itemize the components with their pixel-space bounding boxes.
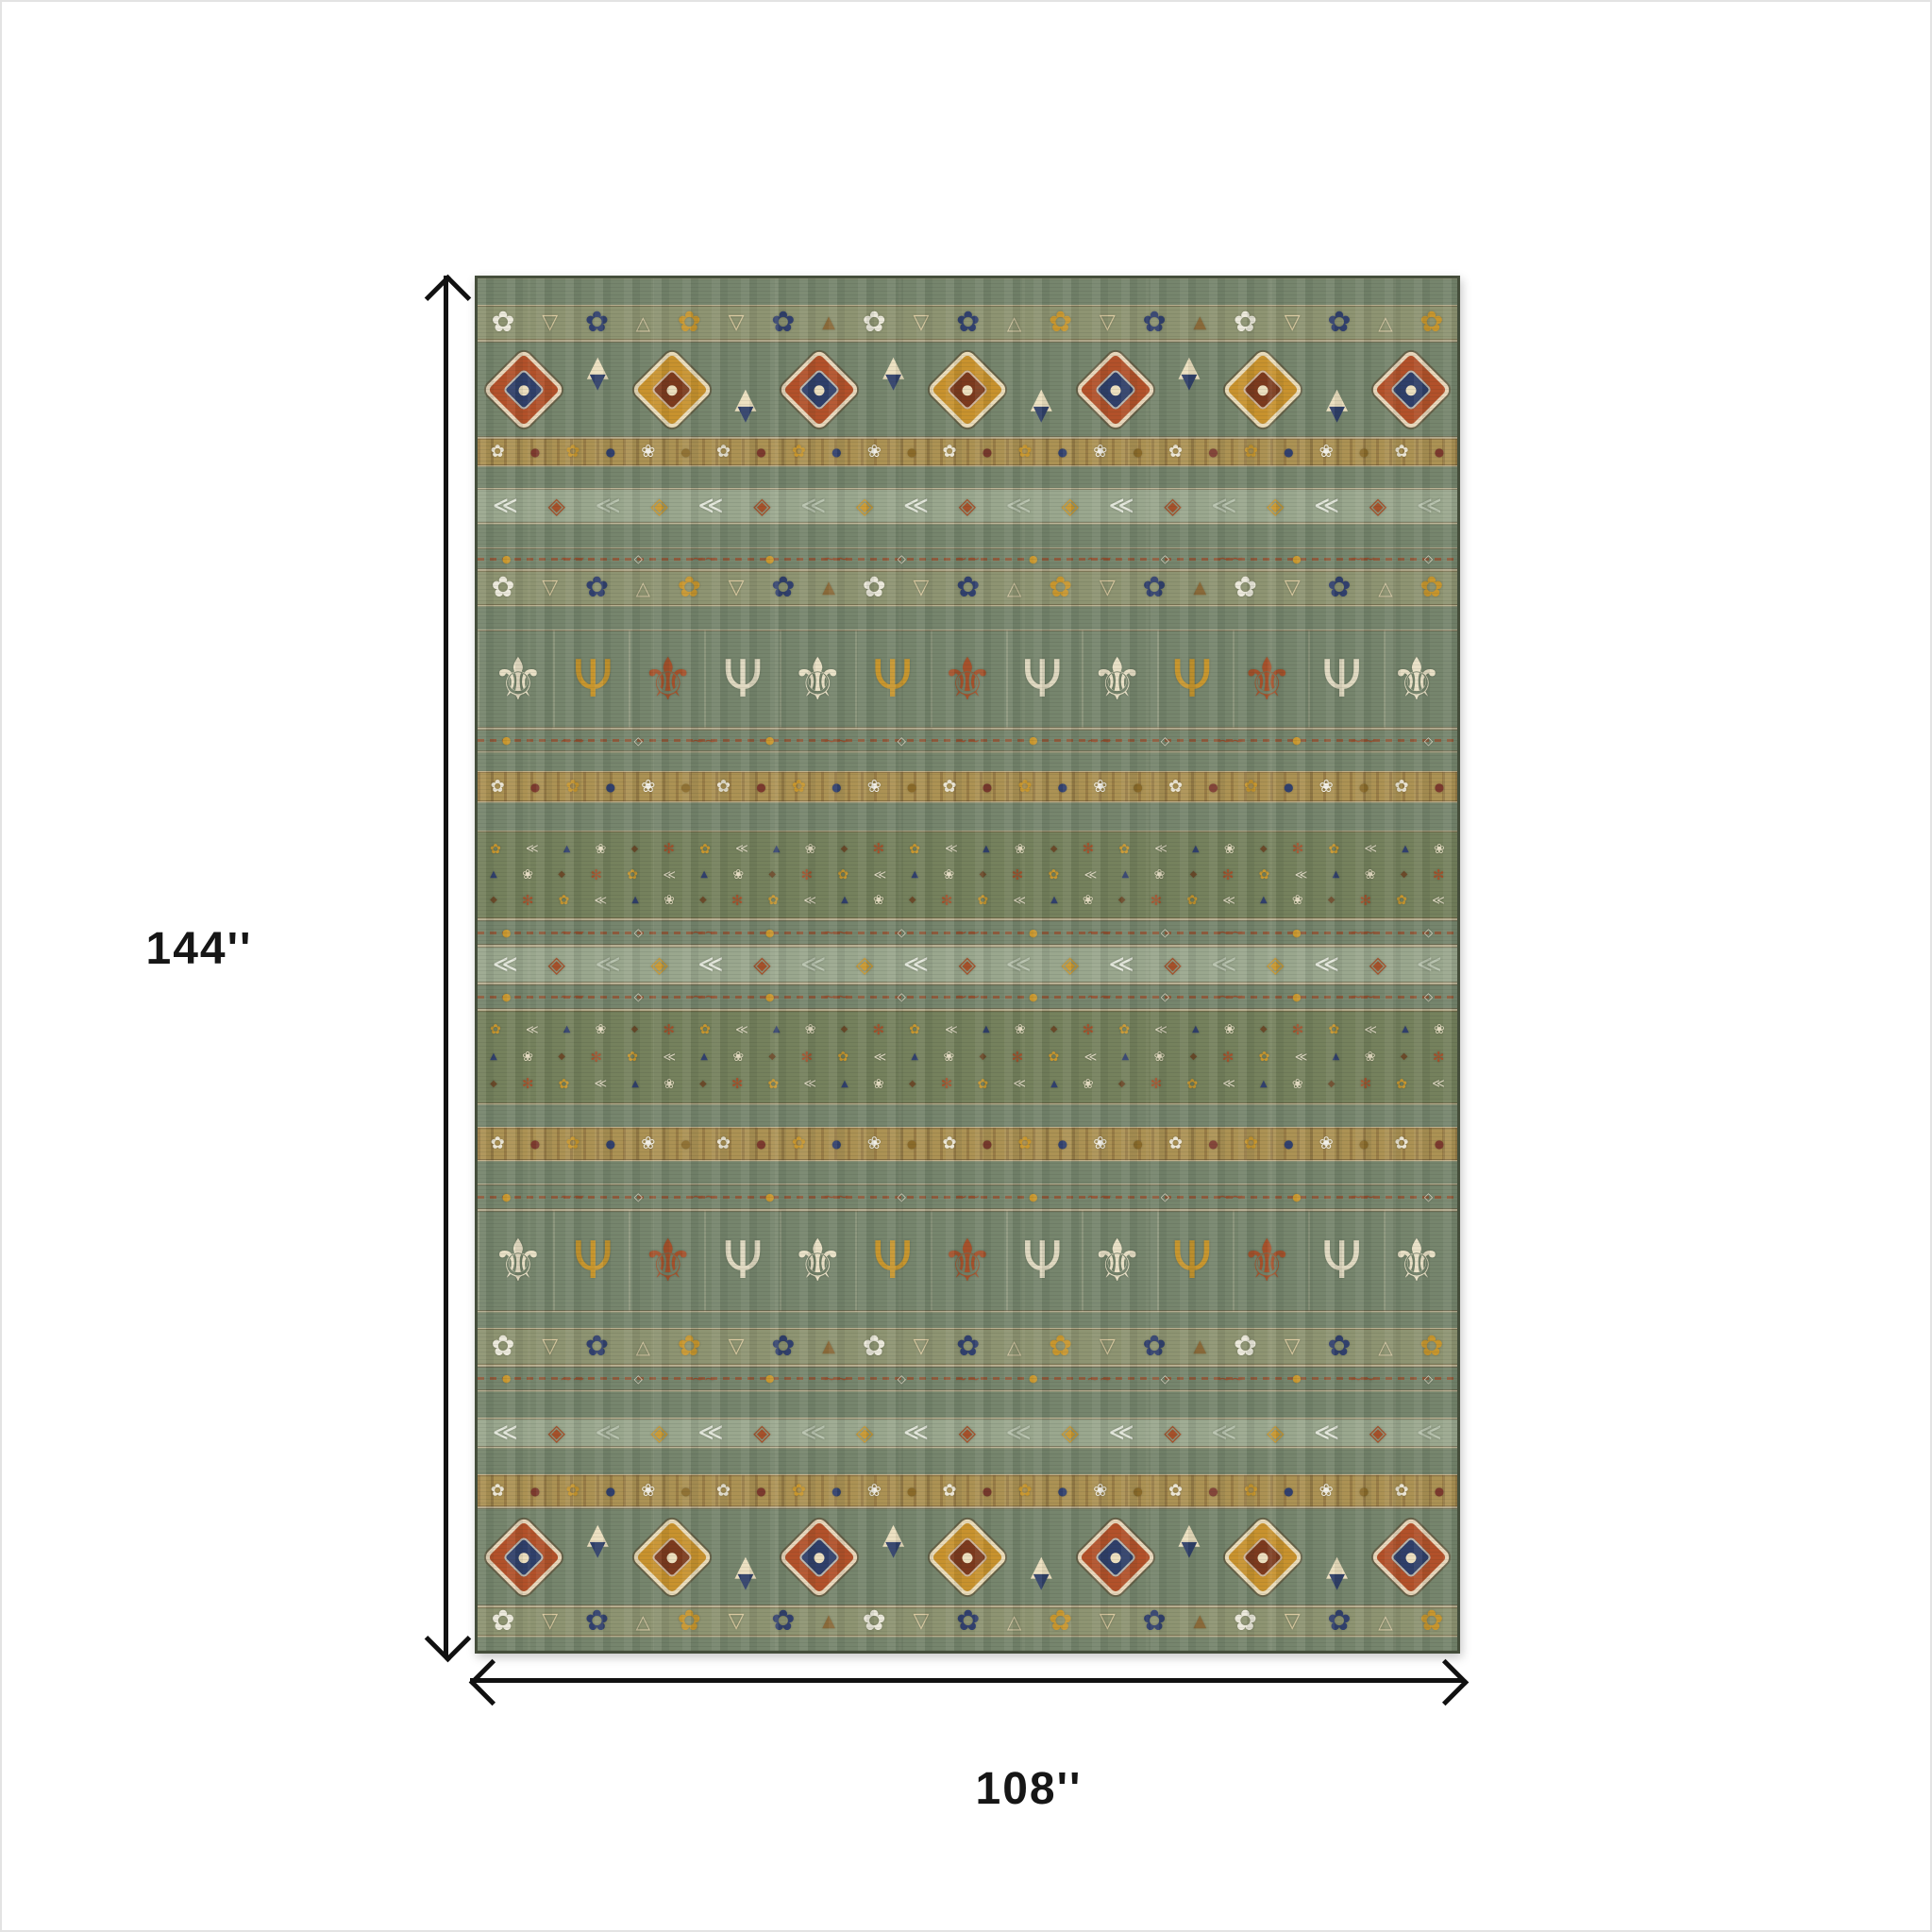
rosette-icon: ✿ [1244, 1135, 1258, 1152]
diamond-icon: ◆ [768, 870, 776, 880]
sprout-icon: ✻ [1012, 1050, 1024, 1065]
diamond-icon: ◈ [1061, 1421, 1078, 1444]
rug-band-scroll: ●∼∼◇∼∼●∼∼◇∼∼●∼∼◇∼∼●∼∼◇ [478, 983, 1457, 1010]
flower-icon: ❀ [732, 868, 744, 882]
chevron-icon: ≪ [945, 1024, 958, 1036]
flower-icon: ❀ [1015, 843, 1026, 856]
chevron-icon: ≪ [663, 869, 676, 882]
triangle-icon: ▲ [822, 314, 835, 331]
chevron-icon: ≪ [697, 952, 723, 977]
scroll-icon: ∼∼ [560, 925, 585, 940]
triangle-motif-icon: ▲▼ [1326, 388, 1348, 423]
arrow-up-icon [425, 275, 471, 321]
rug-band-plain [478, 278, 1457, 305]
flower-icon: ✿ [1234, 1333, 1257, 1361]
diamond-icon: ◈ [856, 1421, 873, 1444]
diamond-icon: ◇ [634, 553, 643, 564]
bud-icon: ▲ [773, 1025, 781, 1034]
floral-row: ◆✻✿≪▲❀◆✻✿≪▲❀◆✻✿≪▲❀◆✻✿≪▲❀◆✻✿≪ [478, 1077, 1457, 1091]
flower-icon: ✿ [1420, 574, 1443, 602]
diamond-icon: ◆ [768, 1052, 776, 1062]
scroll-icon: ∼∼ [823, 733, 848, 748]
diamond-icon: ◇ [634, 735, 643, 747]
diamond-icon: ◆ [909, 1080, 916, 1089]
sprout-icon: ✻ [1433, 1050, 1445, 1065]
flower-icon: ❀ [1224, 1023, 1235, 1036]
diamond-medallion [1074, 1516, 1157, 1599]
bud-icon: ▲ [1402, 1025, 1409, 1034]
chevron-icon: ≪ [1417, 1420, 1442, 1445]
chevron-icon: ≪ [526, 843, 539, 855]
flower-icon: ✿ [1186, 894, 1198, 907]
chevron-icon: ≪ [1417, 494, 1442, 518]
rosette-icon: ✿ [1017, 779, 1032, 796]
dot-icon: ● [1292, 554, 1302, 564]
bud-icon: ▲ [841, 896, 848, 905]
diamond-icon: ◇ [898, 735, 906, 747]
scroll-icon: ∼∼ [1350, 733, 1375, 748]
scroll-icon: ∼∼ [691, 551, 716, 566]
flower-icon: ❀ [522, 1050, 533, 1064]
chevron-icon: ≪ [1108, 952, 1134, 977]
diamond-medallion [1221, 348, 1304, 431]
scroll-icon: ∼∼ [823, 551, 848, 566]
sprig-icon: Ψ [723, 654, 764, 705]
rosette-icon: ✿ [491, 779, 505, 796]
rosette-icon: ✿ [943, 1483, 957, 1500]
flower-icon: ✿ [1327, 574, 1351, 602]
triangle-icon: △ [636, 579, 650, 597]
diamond-medallion [630, 348, 714, 431]
scroll-icon: ∼∼ [1086, 989, 1112, 1004]
diamond-icon: ◇ [1424, 927, 1433, 938]
flower-icon: ❀ [732, 1050, 744, 1064]
chevron-icon: ≪ [1314, 494, 1339, 518]
goblet-icon: ▽ [913, 578, 929, 598]
flower-icon: ❀ [596, 1023, 607, 1036]
dot-icon: ● [502, 1373, 512, 1384]
scroll-icon: ∼∼ [1350, 925, 1375, 940]
diamond-medallion [778, 348, 861, 431]
sprout-icon: ✻ [1012, 868, 1024, 882]
scroll-icon: ∼∼ [560, 733, 585, 748]
bud-icon: ▲ [911, 1052, 918, 1062]
flower-icon: ✿ [1259, 868, 1270, 882]
flower-icon: ❀ [1434, 843, 1445, 856]
dot-icon: ● [680, 781, 690, 793]
dot-icon: ● [1292, 928, 1302, 938]
rosette-icon: ❀ [867, 1135, 882, 1152]
rosette-icon: ❀ [641, 444, 655, 461]
triangle-icon: △ [1378, 1337, 1392, 1356]
flower-icon: ❀ [1365, 1050, 1376, 1064]
flower-icon: ✿ [956, 309, 980, 337]
triangle-icon: △ [1378, 579, 1392, 597]
flower-icon: ✿ [771, 1333, 795, 1361]
flower-icon: ✿ [837, 1050, 848, 1064]
diamond-icon: ◆ [558, 1052, 565, 1062]
rug-band-candelabra: ⚜Ψ⚜Ψ⚜Ψ⚜Ψ⚜Ψ⚜Ψ⚜ [478, 630, 1457, 729]
goblet-icon: ▽ [542, 1336, 558, 1357]
scroll-icon: ∼∼ [1218, 925, 1244, 940]
diamond-icon: ◈ [548, 953, 565, 976]
diamond-icon: ◈ [856, 495, 873, 517]
diamond-icon: ◈ [959, 953, 976, 976]
dot-icon: ● [606, 781, 615, 793]
flower-icon: ✿ [956, 1333, 980, 1361]
dot-icon: ● [832, 781, 841, 793]
scroll-icon: ∼∼ [1350, 989, 1375, 1004]
dot-icon: ● [1208, 781, 1218, 793]
diamond-icon: ◈ [1267, 953, 1284, 976]
goblet-icon: ▽ [1285, 578, 1301, 598]
rosette-icon: ✿ [716, 779, 731, 796]
flower-icon: ✿ [1049, 868, 1060, 882]
diamond-icon: ◈ [856, 953, 873, 976]
dot-icon: ● [502, 1192, 512, 1202]
scroll-icon: ∼∼ [955, 551, 981, 566]
sprout-icon: ✻ [800, 868, 813, 882]
flower-icon: ✿ [585, 1333, 609, 1361]
triangle-motif-icon: ▲▼ [734, 388, 756, 423]
chevron-icon: ≪ [1084, 1051, 1098, 1064]
chevron-icon: ≪ [697, 1420, 723, 1445]
diamond-icon: ◆ [841, 845, 848, 854]
chevron-icon: ≪ [526, 1024, 539, 1036]
diamond-icon: ◈ [753, 953, 770, 976]
flower-icon: ✿ [1049, 574, 1072, 602]
scroll-icon: ∼∼ [560, 1371, 585, 1386]
tulip-icon: ⚜ [492, 650, 545, 709]
chevron-icon: ≪ [1211, 494, 1236, 518]
flower-icon: ✿ [1049, 1607, 1072, 1636]
diamond-medallion [926, 1516, 1009, 1599]
scroll-icon: ∼∼ [1350, 1371, 1375, 1386]
diamond-medallion [630, 1516, 714, 1599]
sprout-icon: ✻ [731, 894, 744, 908]
chevron-icon: ≪ [873, 869, 886, 882]
diamond-icon: ◇ [634, 927, 643, 938]
rosette-icon: ❀ [641, 779, 655, 796]
chevron-icon: ≪ [493, 1420, 518, 1445]
chevron-icon: ≪ [1314, 952, 1339, 977]
bud-icon: ▲ [1050, 896, 1058, 905]
triangle-icon: ▲ [822, 1338, 835, 1355]
dot-icon: ● [606, 1138, 615, 1150]
rug-band-plain [478, 466, 1457, 488]
flower-icon: ✿ [678, 1333, 701, 1361]
tulip-icon: ⚜ [1241, 1232, 1294, 1290]
scroll-icon: ∼∼ [823, 1371, 848, 1386]
dot-icon: ● [502, 735, 512, 746]
chevron-icon: ≪ [800, 494, 826, 518]
chevron-icon: ≪ [1222, 895, 1235, 907]
diamond-icon: ◇ [1161, 927, 1169, 938]
dot-icon: ● [832, 1138, 841, 1150]
arrow-left-icon [469, 1659, 515, 1705]
rug-band-plain [478, 524, 1457, 547]
rosette-icon: ❀ [1093, 1483, 1107, 1500]
flower-icon: ❀ [1083, 894, 1094, 907]
flower-icon: ✿ [559, 894, 570, 907]
sprout-icon: ✻ [1083, 1023, 1095, 1037]
dot-icon: ● [530, 1138, 540, 1150]
rug-band-flowers: ✿▽✿△✿▽✿▲✿▽✿△✿▽✿▲✿▽✿△✿ [478, 305, 1457, 341]
tulip-icon: ⚜ [1241, 650, 1294, 709]
dot-icon: ● [1058, 1486, 1067, 1497]
flower-icon: ❀ [1224, 843, 1235, 856]
flower-icon: ✿ [956, 1607, 980, 1636]
dot-icon: ● [1029, 1373, 1038, 1384]
chevron-icon: ≪ [1314, 1420, 1339, 1445]
goblet-icon: ▽ [542, 578, 558, 598]
dot-icon: ● [502, 992, 512, 1002]
flower-icon: ✿ [863, 1333, 886, 1361]
floral-row: ◆✻✿≪▲❀◆✻✿≪▲❀◆✻✿≪▲❀◆✻✿≪▲❀◆✻✿≪ [478, 894, 1457, 908]
flower-icon: ✿ [491, 309, 514, 337]
diamond-icon: ◇ [1424, 553, 1433, 564]
goblet-icon: ▽ [1285, 312, 1301, 333]
rug-band-dense: ✿●✿●❀●✿●✿●❀●✿●✿●❀●✿●✿●❀●✿● [478, 1127, 1457, 1161]
scroll-icon: ∼∼ [955, 1371, 981, 1386]
rosette-icon: ❀ [1319, 1135, 1334, 1152]
diamond-icon: ◆ [841, 1025, 848, 1034]
goblet-icon: ▽ [1100, 1336, 1116, 1357]
diamond-icon: ◇ [1161, 991, 1169, 1002]
diamond-icon: ◇ [634, 1373, 643, 1385]
dot-icon: ● [680, 446, 690, 458]
bud-icon: ▲ [911, 870, 918, 880]
flower-icon: ✿ [863, 309, 886, 337]
dot-icon: ● [907, 781, 916, 793]
sprig-icon: Ψ [1022, 1235, 1063, 1286]
sprout-icon: ✻ [1222, 1050, 1235, 1065]
diamond-medallion [482, 1516, 565, 1599]
triangle-icon: △ [1007, 1337, 1021, 1356]
scroll-icon: ∼∼ [823, 989, 848, 1004]
chevron-icon: ≪ [1211, 952, 1236, 977]
flower-icon: ❀ [1292, 1078, 1303, 1091]
dot-icon: ● [502, 554, 512, 564]
flower-icon: ✿ [699, 1023, 711, 1036]
chevron-icon: ≪ [735, 1024, 748, 1036]
flower-icon: ❀ [522, 868, 533, 882]
tulip-icon: ⚜ [1390, 650, 1443, 709]
bud-icon: ▲ [631, 896, 639, 905]
sprig-icon: Ψ [872, 1235, 913, 1286]
tulip-icon: ⚜ [1390, 1232, 1443, 1290]
chevron-icon: ≪ [1006, 494, 1032, 518]
tulip-icon: ⚜ [941, 1232, 994, 1290]
diamond-icon: ◆ [699, 896, 707, 905]
bud-icon: ▲ [1402, 845, 1409, 854]
flower-icon: ✿ [1396, 1078, 1407, 1091]
chevron-icon: ≪ [1432, 895, 1445, 907]
flower-icon: ✿ [491, 574, 514, 602]
triangle-motif-icon: ▲▼ [1178, 356, 1200, 391]
sprout-icon: ✻ [663, 842, 675, 856]
rosette-icon: ✿ [1168, 444, 1183, 461]
triangle-motif-icon: ▲▼ [1031, 1555, 1052, 1590]
diamond-icon: ◆ [631, 1025, 639, 1034]
rosette-icon: ✿ [1168, 1483, 1183, 1500]
bud-icon: ▲ [490, 1052, 497, 1062]
tulip-icon: ⚜ [791, 650, 844, 709]
rug-band-floral: ✿≪▲❀◆✻✿≪▲❀◆✻✿≪▲❀◆✻✿≪▲❀◆✻✿≪▲❀▲❀◆✻✿≪▲❀◆✻✿≪… [478, 1010, 1457, 1104]
flower-icon: ✿ [1142, 309, 1166, 337]
flower-icon: ✿ [1118, 1023, 1130, 1036]
rosette-icon: ✿ [491, 444, 505, 461]
diamond-icon: ◆ [1260, 1025, 1268, 1034]
flower-icon: ✿ [1049, 309, 1072, 337]
diamond-icon: ◇ [634, 1191, 643, 1202]
goblet-icon: ▽ [1285, 1336, 1301, 1357]
rosette-icon: ❀ [1319, 779, 1334, 796]
rosette-icon: ✿ [792, 779, 806, 796]
goblet-icon: ▽ [729, 578, 745, 598]
rug-band-plain [478, 1391, 1457, 1418]
dot-icon: ● [756, 446, 765, 458]
tulip-icon: ⚜ [1091, 1232, 1144, 1290]
chevron-icon: ≪ [1108, 1420, 1134, 1445]
goblet-icon: ▽ [1285, 1611, 1301, 1632]
dot-icon: ● [1284, 446, 1293, 458]
chevron-icon: ≪ [1295, 869, 1308, 882]
flower-icon: ✿ [699, 843, 711, 856]
diamond-icon: ◈ [1164, 953, 1181, 976]
chevron-icon: ≪ [1013, 895, 1026, 907]
sprout-icon: ✻ [1292, 842, 1304, 856]
diamond-icon: ◇ [1161, 1373, 1169, 1385]
dot-icon: ● [1208, 446, 1218, 458]
dot-icon: ● [1359, 781, 1369, 793]
triangle-icon: △ [636, 1337, 650, 1356]
chevron-icon: ≪ [903, 494, 929, 518]
dot-icon: ● [1359, 1486, 1369, 1497]
rug-band-plain [478, 802, 1457, 831]
diamond-icon: ◇ [898, 553, 906, 564]
scroll-icon: ∼∼ [1086, 551, 1112, 566]
chevron-icon: ≪ [803, 1078, 816, 1090]
rosette-icon: ✿ [792, 1483, 806, 1500]
triangle-icon: △ [1007, 1612, 1021, 1631]
rug-band-chevron: ≪◈≪◈≪◈≪◈≪◈≪◈≪◈≪◈≪◈≪ [478, 1418, 1457, 1448]
flower-icon: ✿ [977, 1078, 988, 1091]
rosette-icon: ✿ [1244, 779, 1258, 796]
diamond-icon: ◇ [898, 1191, 906, 1202]
chevron-icon: ≪ [1154, 1024, 1168, 1036]
diamond-icon: ◆ [1190, 870, 1198, 880]
diamond-medallion [482, 348, 565, 431]
rug-band-flowers: ✿▽✿△✿▽✿▲✿▽✿△✿▽✿▲✿▽✿△✿ [478, 1606, 1457, 1637]
diamond-icon: ◇ [1424, 991, 1433, 1002]
flower-icon: ✿ [559, 1078, 570, 1091]
scroll-icon: ∼∼ [691, 925, 716, 940]
scroll-icon: ∼∼ [1218, 989, 1244, 1004]
goblet-icon: ▽ [913, 1611, 929, 1632]
rosette-icon: ✿ [491, 1483, 505, 1500]
flower-icon: ❀ [1154, 1050, 1166, 1064]
flower-icon: ❀ [1434, 1023, 1445, 1036]
sprig-icon: Ψ [872, 654, 913, 705]
diamond-icon: ◇ [634, 991, 643, 1002]
triangle-icon: △ [636, 313, 650, 332]
rug-band-medallions: ▲▼▲▼▲▼▲▼▲▼▲▼ [478, 341, 1457, 438]
diamond-icon: ◆ [980, 1052, 987, 1062]
bud-icon: ▲ [1122, 1052, 1130, 1062]
rug-band-plain [478, 752, 1457, 771]
diamond-medallion [1369, 348, 1453, 431]
rosette-icon: ✿ [1017, 1135, 1032, 1152]
scroll-icon: ∼∼ [955, 733, 981, 748]
scroll-icon: ∼∼ [823, 1189, 848, 1204]
bud-icon: ▲ [1333, 1052, 1340, 1062]
flower-icon: ✿ [1118, 843, 1130, 856]
scroll-icon: ∼∼ [691, 733, 716, 748]
rug-band-scroll: ●∼∼◇∼∼●∼∼◇∼∼●∼∼◇∼∼●∼∼◇ [478, 729, 1457, 752]
scroll-icon: ∼∼ [1218, 733, 1244, 748]
diamond-icon: ◈ [1164, 1421, 1181, 1444]
flower-icon: ✿ [1049, 1050, 1060, 1064]
flower-icon: ✿ [585, 1607, 609, 1636]
diamond-medallion [1221, 1516, 1304, 1599]
bud-icon: ▲ [563, 1025, 571, 1034]
diamond-icon: ◈ [650, 495, 667, 517]
rosette-icon: ✿ [1017, 444, 1032, 461]
chevron-icon: ≪ [1222, 1078, 1235, 1090]
chevron-icon: ≪ [903, 1420, 929, 1445]
dot-icon: ● [1359, 1138, 1369, 1150]
bud-icon: ▲ [773, 845, 781, 854]
flower-icon: ✿ [977, 894, 988, 907]
scroll-icon: ∼∼ [955, 925, 981, 940]
bud-icon: ▲ [983, 1025, 990, 1034]
diamond-icon: ◈ [548, 495, 565, 517]
flower-icon: ✿ [1186, 1078, 1198, 1091]
chevron-icon: ≪ [1417, 952, 1442, 977]
chevron-icon: ≪ [697, 494, 723, 518]
scroll-icon: ∼∼ [955, 1189, 981, 1204]
diamond-icon: ◇ [898, 991, 906, 1002]
goblet-icon: ▽ [729, 1336, 745, 1357]
rug-band-plain [478, 1637, 1457, 1654]
diamond-icon: ◆ [1328, 896, 1336, 905]
scroll-icon: ∼∼ [1350, 551, 1375, 566]
triangle-icon: ▲ [1193, 1338, 1206, 1355]
dot-icon: ● [1435, 781, 1444, 793]
flower-icon: ✿ [863, 1607, 886, 1636]
rosette-icon: ✿ [565, 444, 580, 461]
dot-icon: ● [983, 781, 992, 793]
rug-band-candelabra: ⚜Ψ⚜Ψ⚜Ψ⚜Ψ⚜Ψ⚜Ψ⚜ [478, 1210, 1457, 1312]
flower-icon: ✿ [768, 894, 780, 907]
triangle-icon: △ [1378, 313, 1392, 332]
flower-icon: ✿ [1327, 1333, 1351, 1361]
rug-band-scroll: ●∼∼◇∼∼●∼∼◇∼∼●∼∼◇∼∼●∼∼◇ [478, 1366, 1457, 1391]
flower-icon: ✿ [1142, 1333, 1166, 1361]
flower-icon: ✿ [771, 574, 795, 602]
rug-band-scroll: ●∼∼◇∼∼●∼∼◇∼∼●∼∼◇∼∼●∼∼◇ [478, 1184, 1457, 1210]
diamond-icon: ◈ [959, 495, 976, 517]
dot-icon: ● [606, 446, 615, 458]
dot-icon: ● [983, 1138, 992, 1150]
sprout-icon: ✻ [1083, 842, 1095, 856]
sprig-icon: Ψ [573, 1235, 613, 1286]
rosette-icon: ✿ [1395, 1483, 1409, 1500]
flower-icon: ✿ [1234, 574, 1257, 602]
scroll-icon: ∼∼ [1086, 1371, 1112, 1386]
goblet-icon: ▽ [729, 312, 745, 333]
